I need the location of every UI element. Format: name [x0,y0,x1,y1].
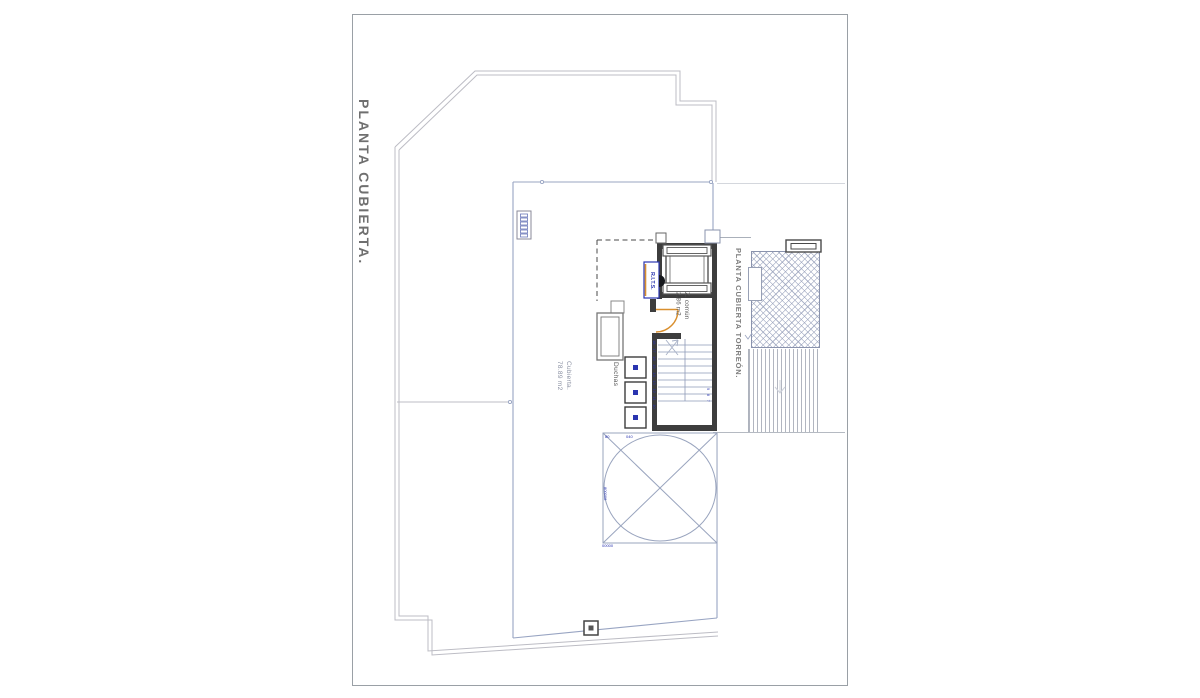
skylight-dim-top-left: 80 [605,434,609,439]
common-zone-size: 2.86 m2 [673,292,682,319]
roof-area-name: Cubierta. [564,361,573,391]
common-zone-label: Z. común 2.86 m2 [673,292,690,319]
torreon-chimney [786,240,821,252]
stair-numbers-right: 9 8 7 [706,388,711,402]
stair-treads [658,339,712,401]
slope-tick [745,333,752,339]
roof-area-size: 78.89 m2 [555,361,564,391]
roof-drain [584,621,598,635]
page-title: PLANTA CUBIERTA. [356,99,372,265]
showers-label: Duchas [612,362,619,386]
roof-area-label: Cubierta. 78.89 m2 [555,361,573,391]
skylight-dim-left: 800008 [603,487,608,500]
skylight [603,433,717,543]
plan-linework [0,0,1200,698]
stair-up-arrow-icon [666,340,678,355]
plan-sheet: PLANTA CUBIERTA. PLANTA CUBIERTA TORREÓN… [0,0,1200,698]
skylight-dim-bottom: 00000 [602,543,613,548]
torreon-title: PLANTA CUBIERTA TORREÓN. [734,248,743,378]
rits-label: R.I.T.S. [646,264,658,297]
stair-numbers-left: 18 17 16 15 14 13 12 11 10 [652,340,657,409]
skylight-dim-top-center: 040 [626,434,633,439]
common-zone-name: Z. común [682,292,691,319]
vent-grille [517,211,531,239]
shower-stalls [625,357,646,428]
planter [597,301,624,360]
shaft-top-box [656,233,666,243]
corner-pillar [705,230,720,243]
slope-arrow-icon [775,380,785,393]
elevator-car [663,245,711,294]
